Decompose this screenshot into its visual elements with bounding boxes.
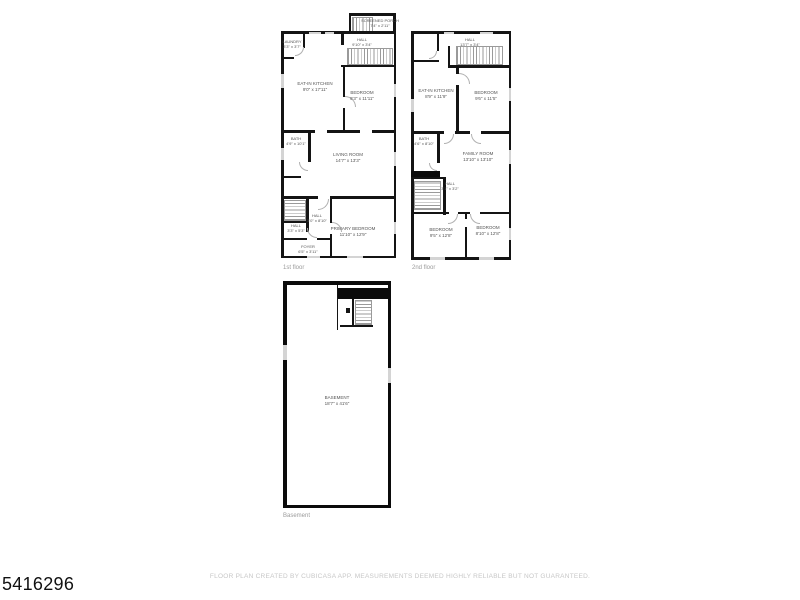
room-label-bedroom-1f: BEDROOM 9'3" x 11'11"	[350, 90, 374, 102]
wall	[337, 285, 338, 330]
window	[509, 88, 512, 101]
wall	[281, 196, 318, 199]
wall	[481, 131, 511, 134]
stairs	[355, 300, 372, 325]
floor-caption-1st: 1st floor	[283, 265, 304, 271]
room-label-foyer: FOYER 6'5" x 3'11"	[298, 244, 317, 254]
wall	[343, 65, 346, 97]
room-label-bedroom-top-2f: BEDROOM 9'6" x 11'5"	[474, 90, 497, 102]
room-dims: 9'5" x 12'8"	[429, 233, 452, 239]
wall	[337, 288, 391, 299]
room-label-bedroom-br-2f: BEDROOM 8'10" x 12'8"	[476, 225, 501, 237]
room-dims: 4'6" x 8'10"	[414, 141, 434, 146]
room-label-bath-1f: BATH 4'9" x 10'1"	[286, 136, 306, 146]
footer-disclaimer: FLOOR PLAN CREATED BY CUBICASA APP. MEAS…	[210, 573, 590, 580]
room-dims: 3'1" x 3'2"	[441, 186, 459, 191]
door-arc	[471, 134, 481, 144]
room-dims: 8'10" x 12'8"	[476, 231, 501, 237]
room-dims: 3'0" x 8'10"	[307, 218, 327, 223]
floor-plan-page: SCREENED PORCH 7'4" x 2'11" LAUNDRY 3'3"…	[0, 0, 800, 600]
wall	[411, 60, 439, 62]
wall	[281, 238, 307, 241]
wall	[330, 196, 396, 199]
wall	[456, 85, 459, 132]
wall	[411, 257, 511, 260]
wall	[281, 57, 294, 59]
room-label-hall-top-1f: HALL 9'10" x 3'4"	[352, 37, 372, 47]
wall	[465, 227, 468, 258]
window	[347, 256, 363, 259]
room-label-bath-2f: BATH 4'6" x 8'10"	[414, 136, 434, 146]
window	[509, 228, 512, 240]
window	[283, 345, 287, 360]
window	[480, 32, 493, 34]
room-dims: 9'6" x 11'5"	[474, 96, 497, 102]
wall	[340, 325, 373, 327]
room-dims: 9'3" x 11'11"	[350, 96, 374, 102]
wall	[330, 199, 333, 223]
wall	[480, 212, 511, 215]
door-arc	[429, 163, 437, 171]
room-name: BEDROOM	[474, 90, 497, 96]
room-label-bedroom-bl-2f: BEDROOM 9'5" x 12'8"	[429, 227, 452, 239]
window	[307, 256, 320, 259]
stairs	[347, 48, 393, 65]
wall	[281, 31, 396, 34]
window	[388, 368, 392, 383]
stairs	[456, 46, 503, 65]
window	[394, 84, 397, 97]
window	[309, 32, 321, 34]
wall	[349, 13, 395, 16]
window	[394, 222, 397, 234]
window	[394, 152, 397, 166]
room-name: FAMILY ROOM	[463, 151, 494, 157]
room-dims: 8'9" x 11'9"	[418, 94, 453, 100]
door-arc	[318, 199, 329, 210]
wall	[317, 238, 331, 241]
stairs	[414, 181, 441, 210]
room-label-eat-in-kitchen-1f: EAT-IN KITCHEN 9'0" x 17'11"	[297, 81, 332, 93]
wall	[341, 31, 344, 45]
room-label-hall-lower-1f: HALL 3'3" x 5'3"	[287, 223, 305, 233]
wall	[411, 212, 445, 215]
door-arc	[470, 214, 480, 224]
door-arc	[429, 51, 437, 59]
wall	[283, 281, 287, 508]
wall	[411, 31, 414, 260]
room-name: EAT-IN KITCHEN	[297, 81, 332, 87]
room-label-eat-in-kitchen-2f: EAT-IN KITCHEN 8'9" x 11'9"	[418, 88, 453, 100]
window	[325, 32, 334, 34]
room-dims: 13'10" x 13'10"	[463, 157, 494, 163]
wall	[281, 31, 284, 258]
room-label-hall-top-2f: HALL 13'7" x 3'4"	[460, 37, 480, 47]
room-dims: 14'7" x 13'3"	[333, 158, 363, 164]
room-dims: 6'5" x 3'11"	[298, 249, 317, 254]
floor-caption-2nd: 2nd floor	[412, 265, 435, 271]
room-dims: 11'10" x 12'9"	[331, 232, 376, 238]
room-label-living-room: LIVING ROOM 14'7" x 13'3"	[333, 152, 363, 164]
room-name: PRIMARY BEDROOM	[331, 226, 376, 232]
wall	[352, 299, 354, 326]
room-dims: 3'3" x 3'7"	[282, 44, 301, 49]
wall	[455, 131, 470, 134]
wall	[372, 130, 396, 133]
wall	[281, 176, 301, 178]
window	[411, 99, 414, 112]
room-label-hall-lower-2f: HALL 3'1" x 3'2"	[441, 181, 459, 191]
wall	[327, 130, 360, 133]
room-name: BEDROOM	[476, 225, 501, 231]
room-dims: 13'7" x 3'4"	[460, 42, 480, 47]
wall	[388, 281, 392, 508]
wall	[283, 505, 391, 509]
wall	[411, 31, 511, 34]
wall	[346, 308, 350, 313]
floor-caption-basement: Basement	[283, 513, 310, 519]
door-arc	[459, 73, 470, 84]
door-arc	[444, 134, 454, 144]
room-dims: 18'7" x 41'6"	[325, 401, 350, 407]
stairs	[284, 200, 306, 221]
room-label-laundry: LAUNDRY 3'3" x 3'7"	[282, 39, 301, 49]
room-label-hall-mid-1f: HALL 3'0" x 8'10"	[307, 213, 327, 223]
window	[444, 32, 454, 34]
room-name: BASEMENT	[325, 395, 350, 401]
wall	[437, 133, 440, 163]
room-label-family-room: FAMILY ROOM 13'10" x 13'10"	[463, 151, 494, 163]
room-name: BEDROOM	[350, 90, 374, 96]
wall	[465, 214, 468, 219]
wall	[308, 132, 311, 162]
wall	[411, 177, 445, 180]
mls-number: 5416296	[2, 574, 74, 595]
wall	[341, 65, 396, 68]
room-dims: 4'9" x 10'1"	[286, 141, 306, 146]
door-arc	[307, 228, 317, 238]
door-arc	[448, 214, 458, 224]
room-label-primary-bedroom: PRIMARY BEDROOM 11'10" x 12'9"	[331, 226, 376, 238]
room-dims: 3'3" x 5'3"	[287, 228, 305, 233]
door-arc	[299, 162, 308, 171]
room-dims: 7'4" x 2'11"	[361, 23, 399, 28]
window	[479, 257, 494, 260]
wall	[303, 31, 305, 48]
room-dims: 9'10" x 3'4"	[352, 42, 372, 47]
wall	[437, 31, 439, 51]
window	[281, 148, 284, 160]
room-label-basement: BASEMENT 18'7" x 41'6"	[325, 395, 350, 407]
room-label-screened-porch: SCREENED PORCH 7'4" x 2'11"	[361, 18, 399, 28]
room-name: BEDROOM	[429, 227, 452, 233]
wall	[281, 256, 396, 259]
window	[509, 150, 512, 164]
room-dims: 9'0" x 17'11"	[297, 87, 332, 93]
window	[430, 257, 445, 260]
wall	[448, 46, 450, 67]
room-name: EAT-IN KITCHEN	[418, 88, 453, 94]
window	[281, 74, 284, 88]
wall	[343, 108, 346, 133]
room-name: LIVING ROOM	[333, 152, 363, 158]
